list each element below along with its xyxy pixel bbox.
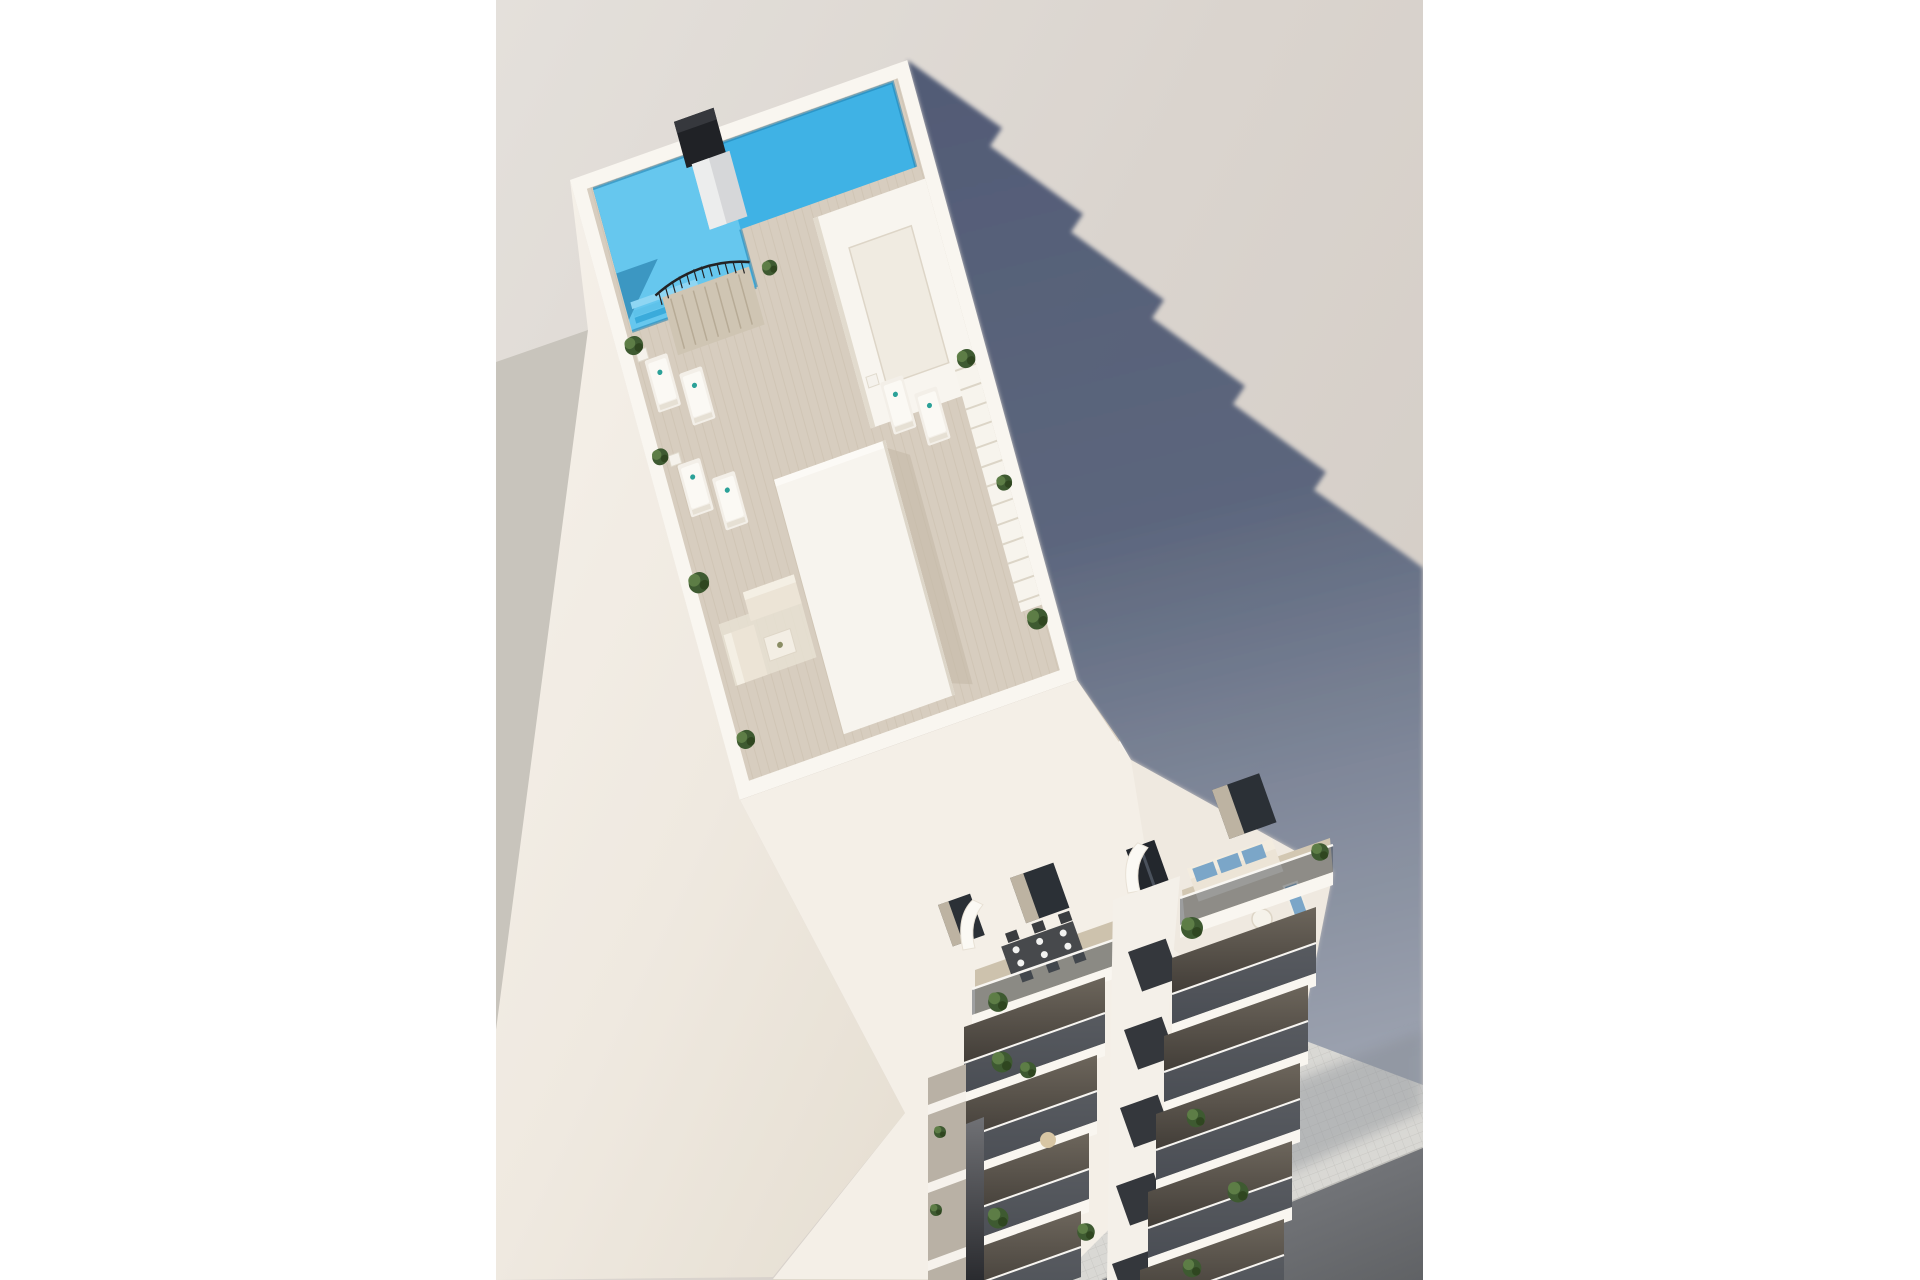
- sliver-plant-1: [934, 1126, 946, 1138]
- balcony-plant-5: [1187, 1109, 1206, 1128]
- balcony-plant-2: [1020, 1062, 1037, 1079]
- render-photo: [496, 0, 1423, 1280]
- dining-balcony-plant: [988, 992, 1008, 1012]
- sliver-plant-2: [930, 1204, 942, 1216]
- balcony-parasol: [1040, 1132, 1056, 1148]
- render-canvas: [0, 0, 1920, 1280]
- sofa-balcony-plant-1: [1181, 917, 1203, 939]
- aerial-render-svg: [0, 0, 1920, 1280]
- balcony-plant-7: [1183, 1259, 1202, 1278]
- balcony-plant-4: [1077, 1223, 1095, 1241]
- balcony-plant-6: [1228, 1182, 1249, 1203]
- balcony-plant-1: [992, 1052, 1013, 1073]
- sofa-balcony-plant-2: [1311, 843, 1329, 861]
- balcony-plant-3: [988, 1208, 1009, 1229]
- facade-shadow-gap: [966, 1117, 984, 1280]
